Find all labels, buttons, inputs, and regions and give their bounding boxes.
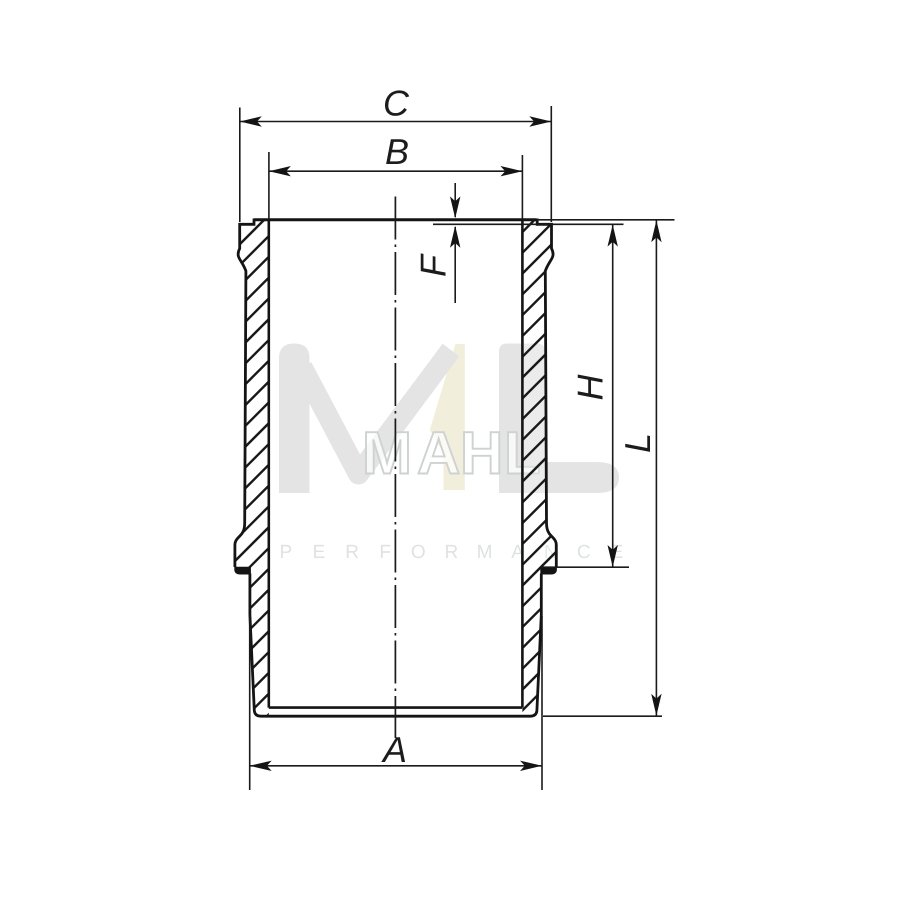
svg-text:A: A (417, 420, 460, 487)
svg-text:C: C (577, 542, 591, 563)
svg-text:R: R (445, 542, 459, 563)
svg-text:L: L (617, 433, 658, 453)
svg-text:F: F (379, 542, 391, 563)
svg-text:B: B (385, 131, 409, 172)
svg-text:H: H (570, 374, 611, 401)
svg-text:A: A (381, 729, 407, 770)
svg-text:O: O (411, 542, 426, 563)
svg-text:H: H (460, 420, 503, 487)
svg-text:C: C (383, 83, 410, 124)
svg-text:E: E (313, 542, 326, 563)
svg-text:M: M (362, 420, 412, 487)
svg-text:M: M (477, 542, 493, 563)
svg-text:P: P (280, 542, 293, 563)
svg-text:F: F (413, 253, 454, 277)
svg-text:R: R (345, 542, 359, 563)
